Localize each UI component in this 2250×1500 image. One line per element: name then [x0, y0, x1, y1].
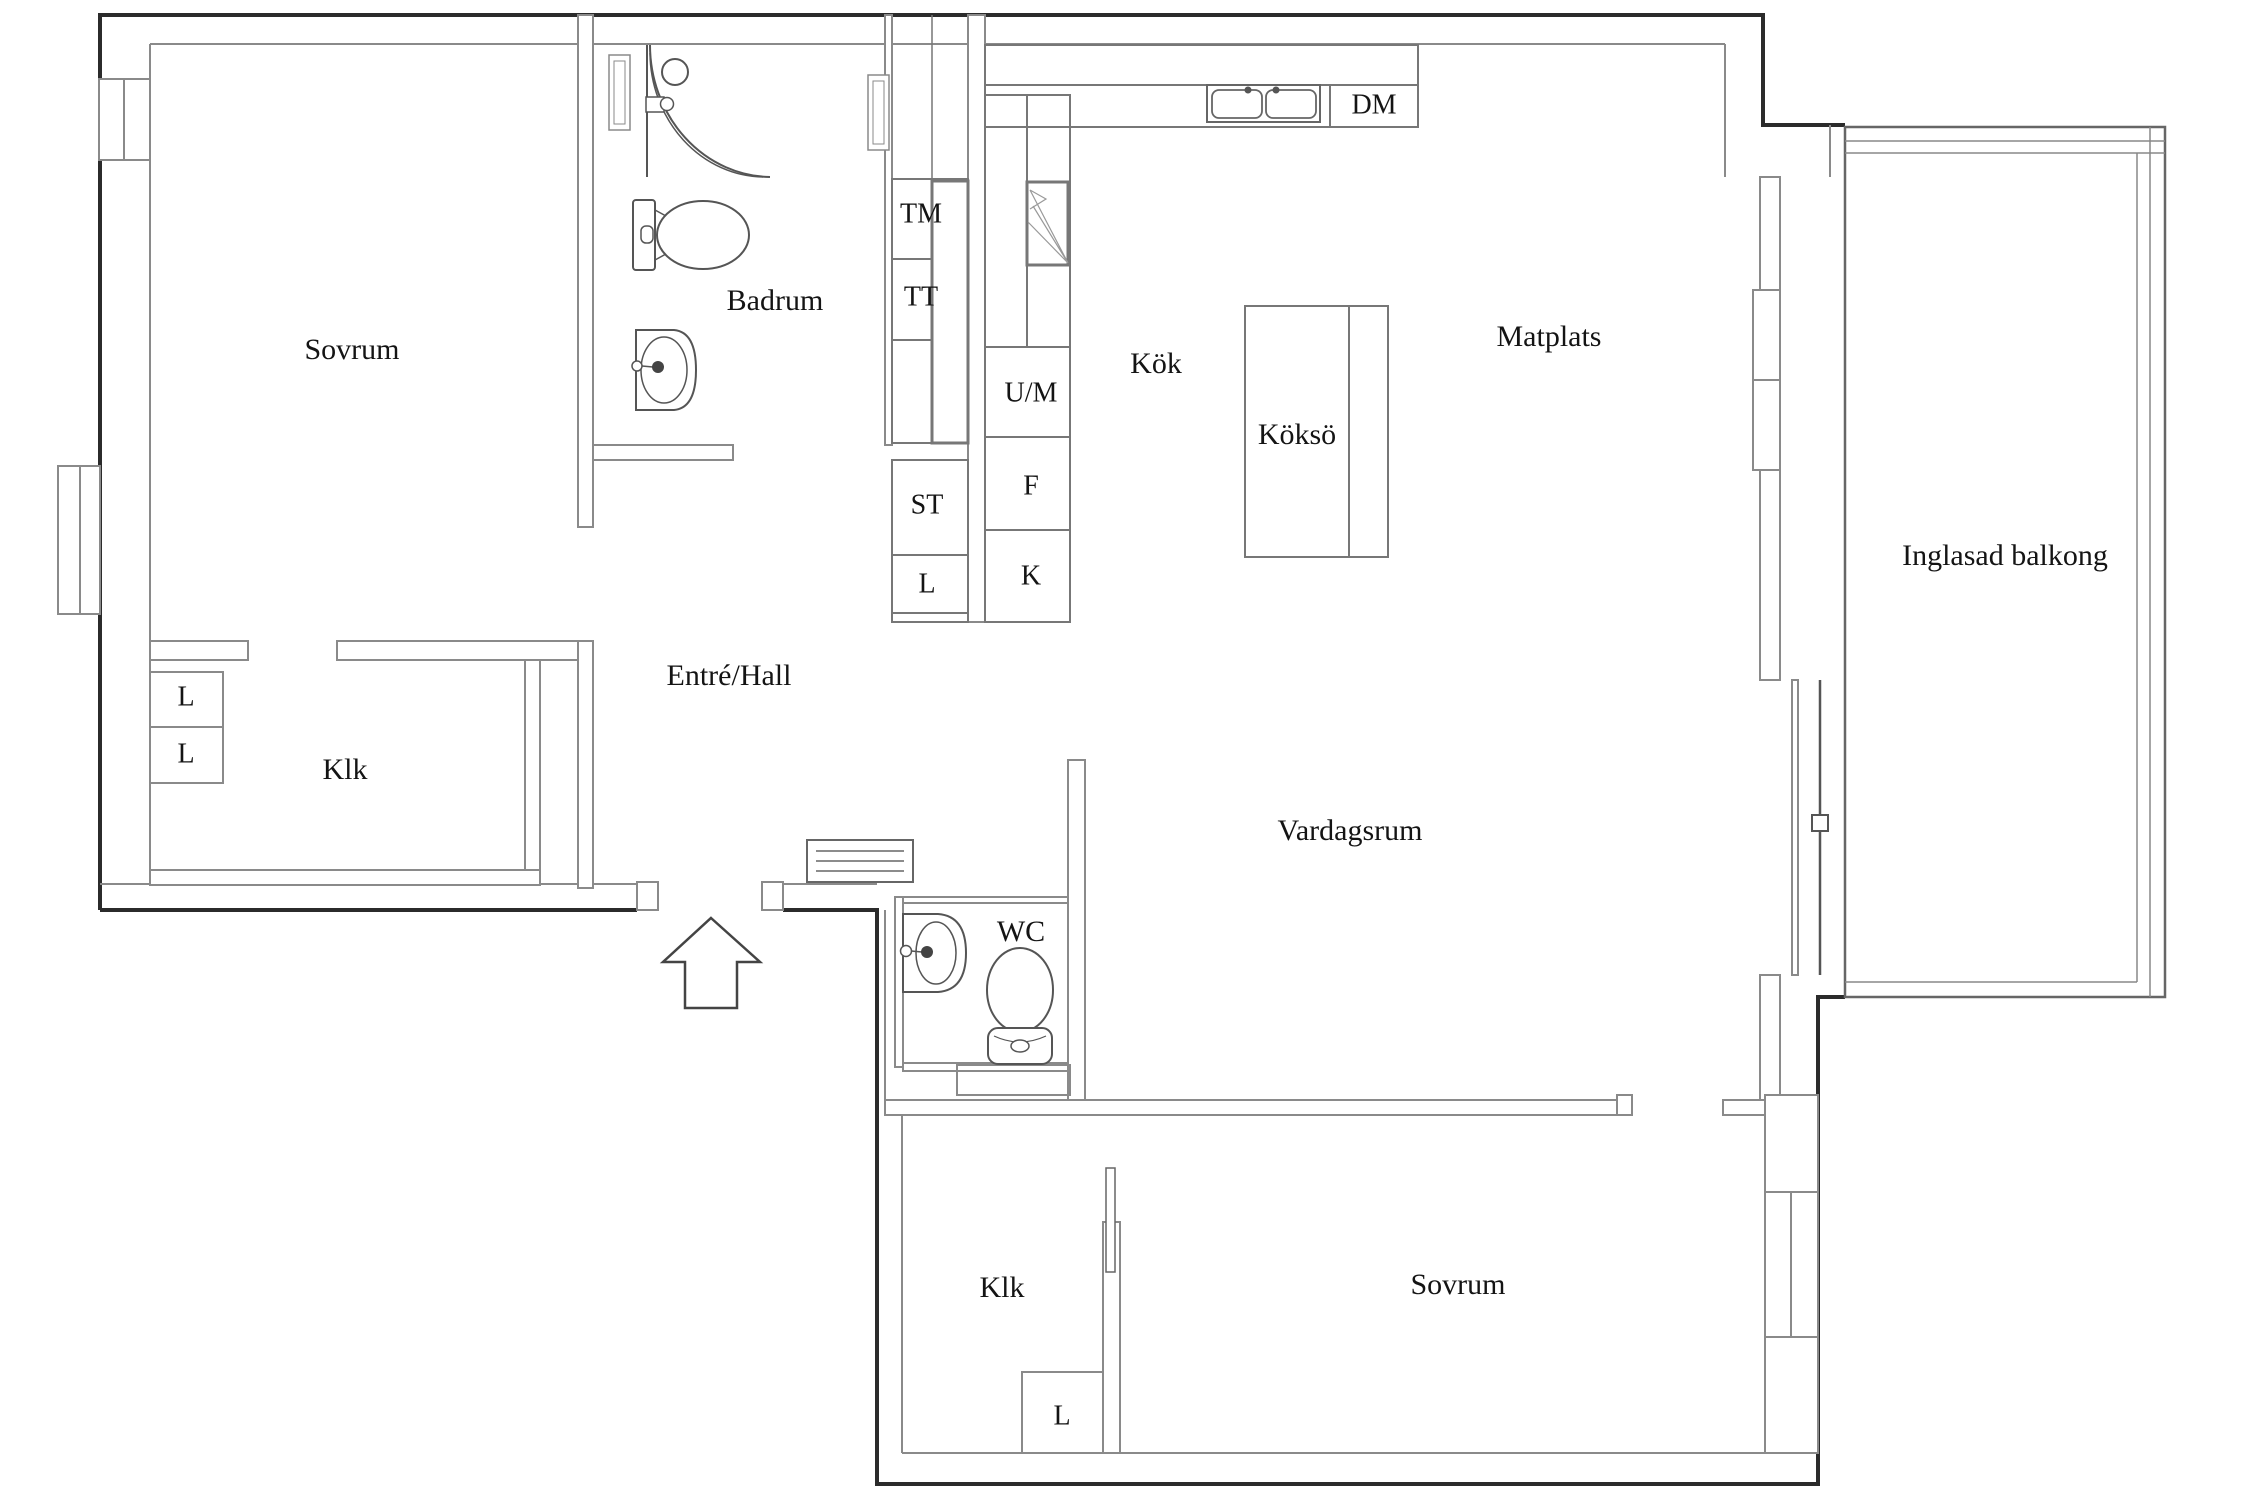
room-label-inglasad-balkong: Inglasad balkong: [1902, 539, 2108, 572]
appliance-label-st: ST: [911, 489, 944, 520]
wall-wc-top: [903, 897, 1068, 903]
room-label-sovrum-top: Sovrum: [304, 333, 399, 366]
appliance-label-l-klk-2: L: [177, 738, 194, 769]
wall-badrum-bottom: [593, 445, 733, 460]
basin-tap: [901, 946, 912, 957]
duct-shaft-inner: [873, 81, 884, 144]
toilet-flush: [641, 226, 653, 243]
balcony-door-frame: [1792, 680, 1798, 975]
wall-right-2: [1760, 470, 1780, 680]
badrum-fixtures: [632, 45, 770, 410]
exterior-wall-inner-faces: [100, 44, 1830, 1453]
floor-plan-page: Sovrum Badrum Kök Matplats Köksö Inglasa…: [0, 0, 2250, 1500]
appliance-label-dm: DM: [1351, 89, 1396, 120]
door-jamb: [1617, 1095, 1632, 1115]
wall-sovrum-bottom-1: [150, 641, 248, 660]
room-label-kokso: Köksö: [1258, 418, 1336, 451]
appliance-label-l-hall: L: [918, 568, 935, 599]
room-label-matplats: Matplats: [1497, 320, 1602, 353]
sink-basin: [1266, 90, 1316, 118]
sink-tap: [1273, 87, 1280, 94]
appliance-label-um: U/M: [1005, 377, 1058, 408]
wall-bottom-rooms-top: [885, 1100, 1632, 1115]
appliance-label-tm: TM: [900, 198, 942, 229]
room-label-vardagsrum: Vardagsrum: [1278, 814, 1423, 847]
appliance-label-f: F: [1023, 470, 1039, 501]
kitchen-sink-icon: [1207, 85, 1320, 122]
wall-sovrum-badrum: [578, 15, 593, 527]
room-label-badrum: Badrum: [727, 284, 824, 317]
sliding-door-icon: [1106, 1168, 1115, 1272]
door-jamb: [637, 882, 658, 910]
room-label-entre-hall: Entré/Hall: [667, 659, 792, 692]
basin-drain: [652, 361, 664, 373]
toilet-icon: [987, 948, 1053, 1032]
entrance-arrow-icon: [663, 918, 760, 1008]
wall-klk-right: [525, 660, 540, 870]
wall-klk-bottom: [150, 870, 540, 885]
appliance-label-l-klk-bottom: L: [1053, 1400, 1070, 1431]
wall-sovrum-bottom-2: [337, 641, 578, 660]
basin-tap: [632, 361, 642, 371]
room-label-klk-bottom: Klk: [980, 1271, 1025, 1304]
closet-base: [892, 613, 968, 622]
corner-cabinet-fan: [1028, 190, 1068, 263]
toilet-button: [1011, 1040, 1029, 1052]
door-jamb: [762, 882, 783, 910]
windows: [58, 79, 1828, 1337]
appliance-label-l-klk-1: L: [177, 681, 194, 712]
wall-right-5: [1765, 1337, 1818, 1453]
room-label-wc: WC: [997, 915, 1045, 948]
room-label-klk-left: Klk: [323, 753, 368, 786]
exterior-wall-bottom-right: [783, 910, 1845, 1484]
wall-wc-vardagsrum: [1068, 760, 1085, 1105]
shower-head: [662, 59, 688, 85]
basin-tap-stem: [911, 951, 922, 952]
wall-right-4: [1765, 1095, 1818, 1192]
floor-plan: Sovrum Badrum Kök Matplats Köksö Inglasa…: [0, 0, 2250, 1500]
duct-shaft-inner: [614, 61, 625, 124]
shower-mixer-knob: [661, 98, 674, 111]
doormat-icon: [807, 840, 913, 882]
wall-wc-left: [895, 897, 903, 1067]
room-label-sovrum-bottom: Sovrum: [1410, 1268, 1505, 1301]
wall-right-3: [1760, 975, 1780, 1100]
room-label-kok: Kök: [1130, 347, 1182, 380]
appliance-label-tt: TT: [904, 281, 938, 312]
sink-basin: [1212, 90, 1262, 118]
basin-tap-stem: [642, 366, 653, 367]
basin-drain: [921, 946, 933, 958]
sink-tap: [1245, 87, 1252, 94]
wall-cabinet-divider: [968, 15, 985, 622]
wall-hall-left-stub: [578, 641, 593, 888]
toilet-icon: [657, 201, 749, 269]
balcony-door-handle: [1812, 815, 1828, 831]
appliance-label-k: K: [1021, 560, 1041, 591]
wall-right-1: [1760, 177, 1780, 290]
